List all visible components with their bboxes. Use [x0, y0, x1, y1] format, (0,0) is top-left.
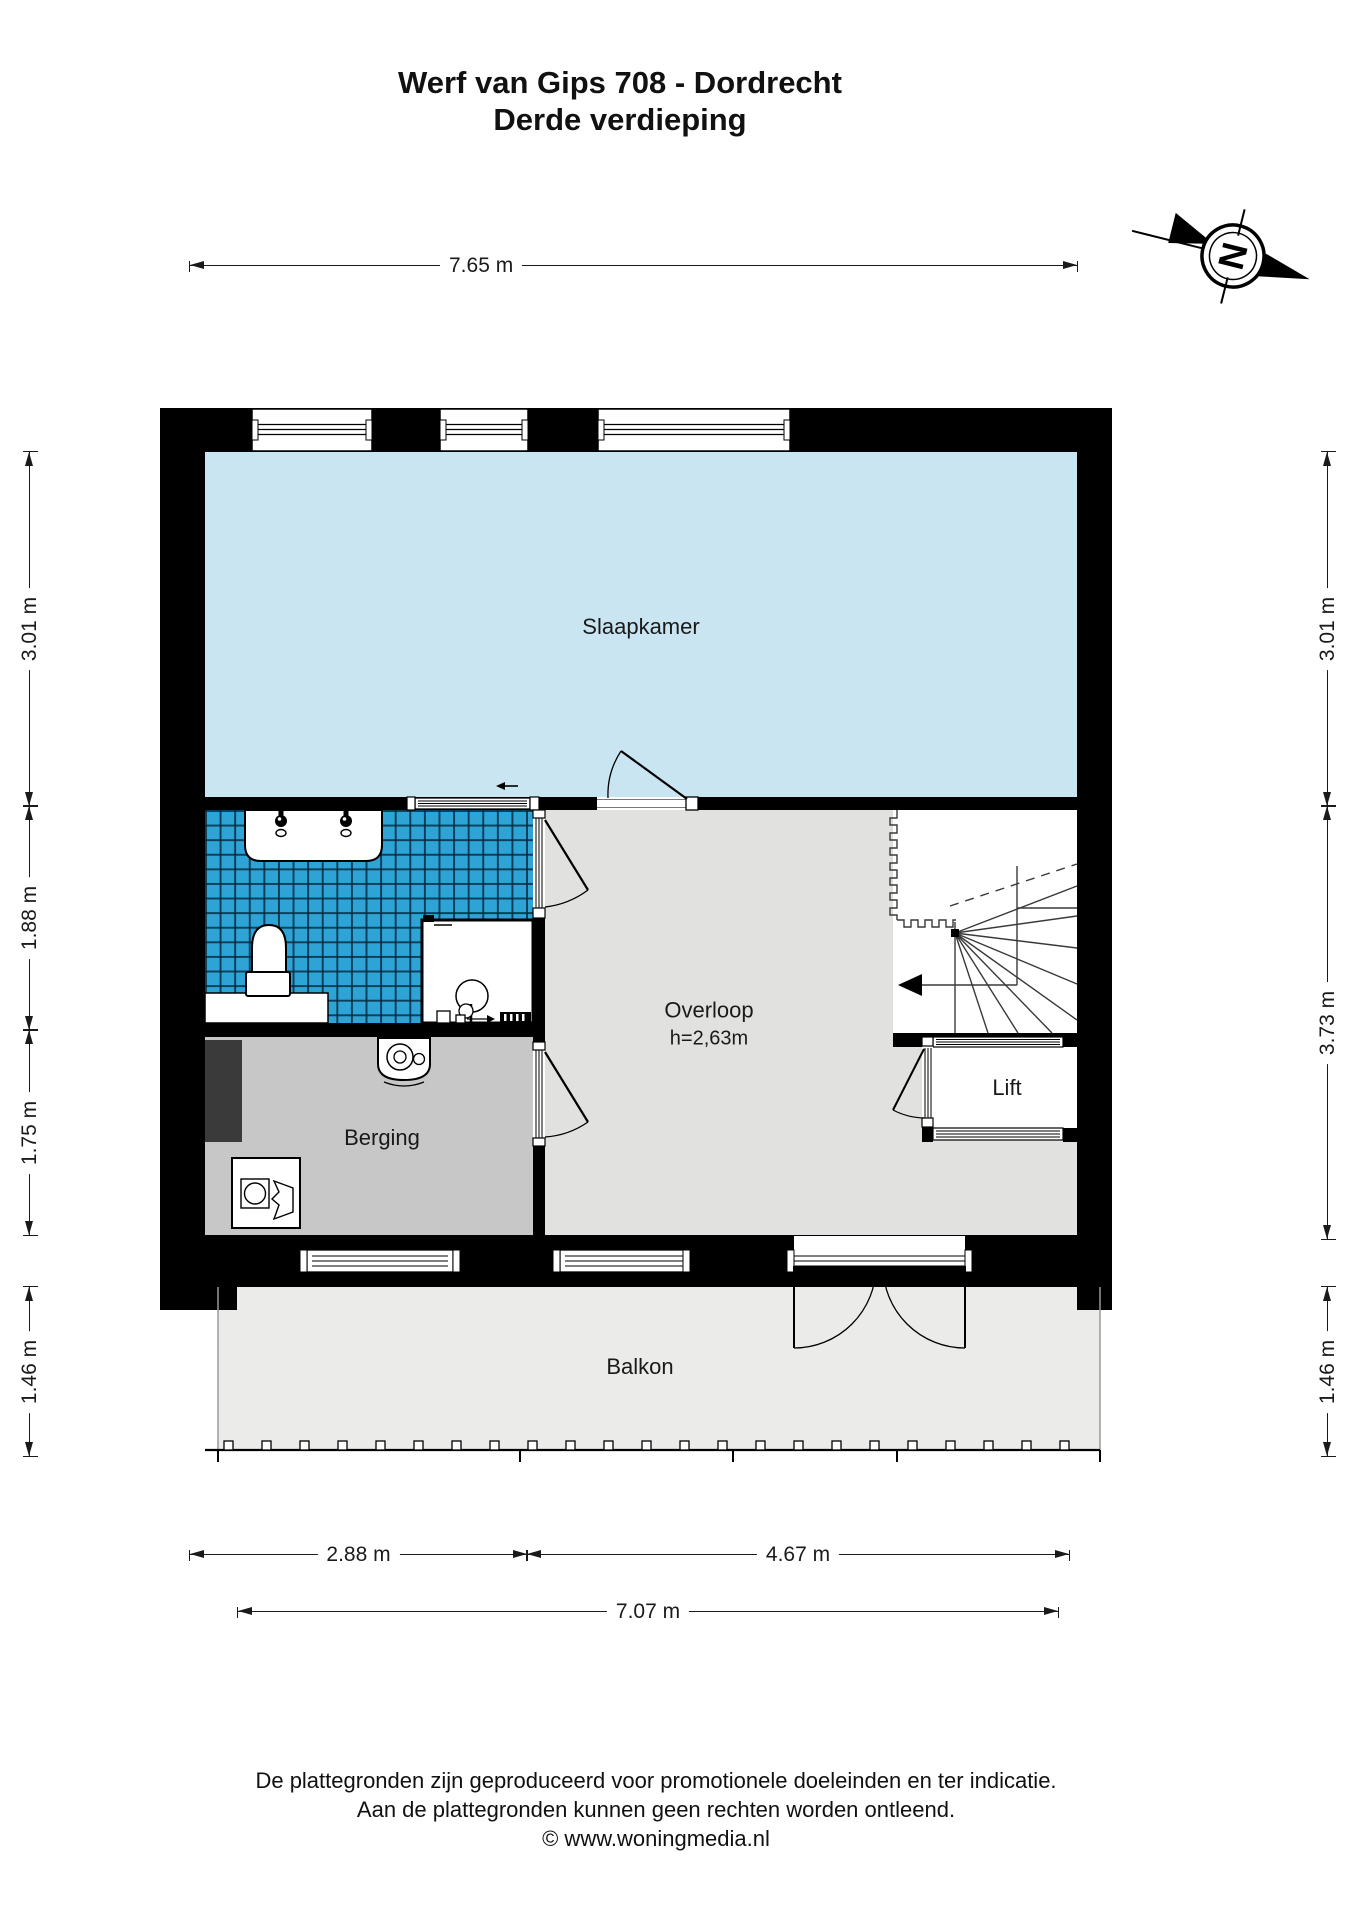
dim-right-373: 3.73 m [1327, 806, 1328, 1239]
dim-tick [23, 1029, 38, 1030]
dim-left-175: 1.75 m [29, 1030, 30, 1235]
dim-label: 4.67 m [757, 1543, 839, 1567]
dim-label: 3.73 m [1316, 981, 1340, 1063]
window [300, 1250, 460, 1272]
dim-tick [237, 1607, 238, 1618]
label-berging: Berging [344, 1125, 420, 1151]
dim-label: 1.46 m [1316, 1330, 1340, 1412]
stair-break-line [890, 810, 897, 920]
double-washbasin-icon [245, 810, 382, 861]
dim-left-301: 3.01 m [29, 452, 30, 806]
dim-label: 1.75 m [18, 1091, 42, 1173]
counter [205, 993, 328, 1023]
footer-line-3: © www.woningmedia.nl [0, 1824, 1312, 1853]
dim-bottom-288: 2.88 m [190, 1554, 527, 1555]
compass-north-icon: N [1120, 184, 1322, 323]
dim-label: 3.01 m [18, 588, 42, 670]
boiler-icon [378, 1038, 430, 1086]
dim-tick [1069, 1550, 1070, 1561]
dim-tick [23, 1456, 38, 1457]
label-overloop-name: Overloop [664, 998, 753, 1023]
window [598, 409, 790, 451]
dim-bottom-707: 7.07 m [238, 1611, 1058, 1612]
floorplan-drawing: N [0, 0, 1358, 1920]
ventilation-arrow-icon [496, 782, 518, 790]
dim-tick [1077, 261, 1078, 272]
bottom-wall-openings [300, 1236, 972, 1348]
window [252, 409, 372, 451]
dim-tick [526, 1550, 527, 1561]
lift-shaft [893, 1037, 1063, 1140]
window [553, 1250, 690, 1272]
dim-tick [1321, 805, 1336, 806]
door-slaapkamer [597, 751, 698, 810]
dim-right-301: 3.01 m [1327, 452, 1328, 806]
dim-label: 3.01 m [1316, 588, 1340, 670]
dim-tick [23, 1286, 38, 1287]
dim-tick [23, 805, 38, 806]
door-balkon-french [787, 1236, 972, 1348]
stair-break-line [897, 920, 956, 927]
staircase [890, 810, 1077, 1033]
dim-top-765: 7.65 m [190, 265, 1077, 266]
footer-line-1: De plattegronden zijn geproduceerd voor … [0, 1766, 1312, 1795]
label-overloop: Overloop h=2,63m [664, 998, 753, 1051]
dim-tick [189, 261, 190, 272]
dim-bottom-467: 4.67 m [527, 1554, 1069, 1555]
washing-machine-icon [232, 1158, 300, 1228]
dim-left-146: 1.46 m [29, 1287, 30, 1456]
dim-tick [1321, 1239, 1336, 1240]
footer-line-2: Aan de plattegronden kunnen geen rechten… [0, 1795, 1312, 1824]
dim-tick [1321, 1286, 1336, 1287]
dim-label: 1.88 m [18, 877, 42, 959]
dim-tick [189, 1550, 190, 1561]
label-slaapkamer: Slaapkamer [582, 614, 699, 640]
dim-tick [23, 451, 38, 452]
dim-tick [1058, 1607, 1059, 1618]
label-lift: Lift [992, 1075, 1021, 1101]
dim-label: 1.46 m [18, 1330, 42, 1412]
dim-left-188: 1.88 m [29, 806, 30, 1030]
floorplan-page: Werf van Gips 708 - Dordrecht Derde verd… [0, 0, 1358, 1920]
window [440, 409, 528, 451]
facade-windows-top [252, 409, 790, 451]
shower-icon [422, 915, 533, 1023]
railing-posts [224, 1441, 1069, 1450]
door-lift [893, 1037, 933, 1127]
duct-shaft [205, 1040, 242, 1142]
dim-label: 2.88 m [317, 1543, 399, 1567]
label-overloop-height: h=2,63m [664, 1028, 753, 1051]
dim-right-146: 1.46 m [1327, 1287, 1328, 1456]
dim-tick [1321, 451, 1336, 452]
dim-tick [23, 1235, 38, 1236]
label-balkon: Balkon [606, 1354, 673, 1380]
footer-disclaimer: De plattegronden zijn geproduceerd voor … [0, 1766, 1312, 1853]
dim-label: 7.07 m [607, 1600, 689, 1624]
stair-direction-arrow-icon [898, 974, 922, 996]
door-badkamer [533, 810, 588, 918]
door-berging [533, 1042, 588, 1146]
dim-tick [1321, 1456, 1336, 1457]
toilet-icon [246, 925, 290, 996]
dim-label: 7.65 m [440, 254, 522, 278]
bathroom-fixtures [205, 810, 533, 1023]
